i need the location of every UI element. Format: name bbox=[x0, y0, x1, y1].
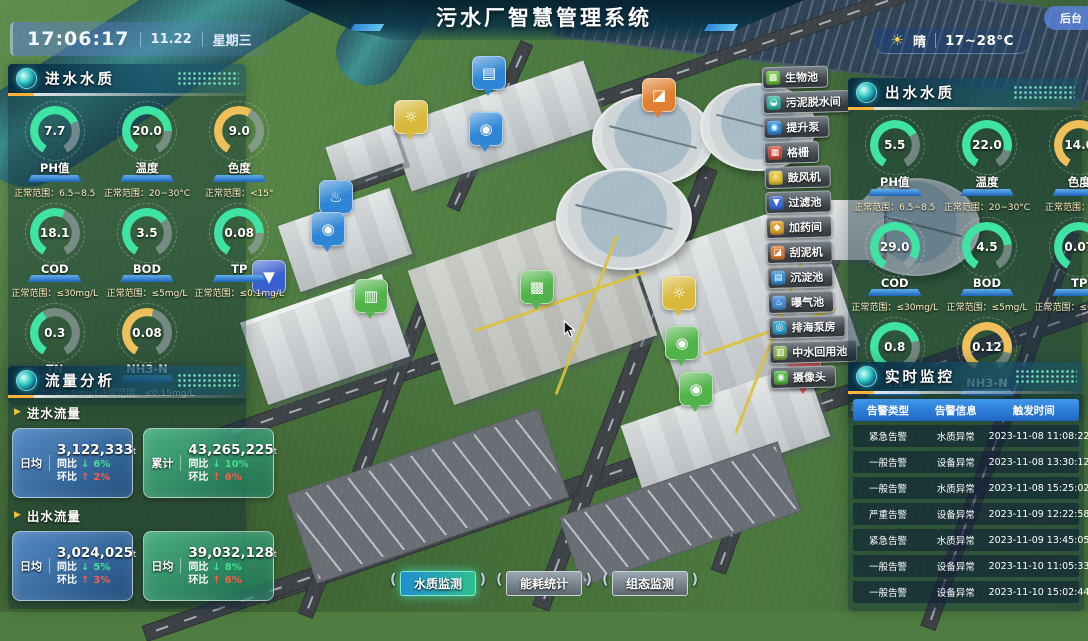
divider bbox=[140, 32, 141, 47]
marker-glyph: ☼ bbox=[394, 100, 428, 134]
clock-weekday: 星期三 bbox=[213, 30, 252, 49]
down-arrow-icon: ↓ bbox=[212, 561, 220, 574]
facility-label: 过滤池 bbox=[788, 194, 821, 211]
gauge-label: COD bbox=[41, 262, 69, 276]
gauge-label-pedestal bbox=[960, 289, 1014, 296]
temperature-range: 17~28°C bbox=[945, 33, 1014, 49]
flow-amount: 3,122,333 bbox=[57, 442, 133, 458]
gauge-label: 温度 bbox=[975, 174, 998, 190]
facility-label: 加药间 bbox=[789, 219, 822, 236]
normal-range: 正常范围：≤5mg/L bbox=[107, 286, 188, 299]
alarm-type: 一般告警 bbox=[853, 585, 923, 599]
gauge-label-pedestal bbox=[960, 189, 1014, 196]
flow-unit: t bbox=[133, 447, 136, 457]
alarm-type: 严重告警 bbox=[853, 507, 923, 521]
clock-date: 11.22 bbox=[151, 32, 192, 47]
gauge-value: 0.08 bbox=[214, 208, 264, 258]
flow-unit: t bbox=[274, 447, 277, 457]
facility-pill-dosing-room[interactable]: ◆ 加药间 bbox=[766, 215, 833, 239]
normal-range: 正常范围：≤5mg/L bbox=[947, 300, 1028, 313]
range-value: ≤5mg/L bbox=[992, 303, 1028, 313]
gauge-value: 29.0 bbox=[870, 222, 920, 272]
footer-tab[interactable]: 能耗统计 bbox=[506, 571, 582, 596]
mom-label: 环比 bbox=[188, 574, 208, 587]
range-value: ≤30mg/L bbox=[896, 303, 938, 313]
gauge-value: 20.0 bbox=[122, 106, 172, 156]
flow-value: 3,122,333t bbox=[57, 442, 125, 458]
range-value: ≤0.1mg/L bbox=[240, 289, 284, 299]
parking-lot bbox=[287, 409, 568, 582]
gauge-label-pedestal bbox=[28, 175, 82, 182]
marker-glyph: ☼ bbox=[662, 276, 696, 310]
section-orb-icon bbox=[16, 68, 37, 89]
facility-label: 中水回用池 bbox=[792, 343, 847, 360]
gauge-value: 9.0 bbox=[214, 106, 264, 156]
gauge-value: 22.0 bbox=[962, 120, 1012, 170]
range-prefix: 正常范围： bbox=[205, 189, 250, 199]
yoy-label: 同比 bbox=[57, 561, 77, 574]
gauge-value: 4.5 bbox=[962, 222, 1012, 272]
facility-glyph: ◪ bbox=[773, 248, 782, 258]
facility-icon: ▦ bbox=[768, 146, 782, 160]
facility-glyph: ◆ bbox=[773, 223, 780, 233]
facility-glyph: ▤ bbox=[774, 273, 783, 283]
gauge-ring: 29.0 bbox=[870, 222, 920, 272]
alarm-type: 紧急告警 bbox=[853, 429, 923, 443]
table-row[interactable]: 紧急告警 水质异常 2023-11-08 11:08:22 bbox=[853, 425, 1079, 447]
range-value: 6.5~8.5 bbox=[899, 203, 935, 213]
gauge-value: 7.7 bbox=[30, 106, 80, 156]
gauge-ring: 0.08 bbox=[122, 308, 172, 358]
flow-analysis-panel: 流量分析 ▶ 进水流量 日均 3,122,333t 同比↓6% 环比↑2% 累计… bbox=[8, 366, 246, 609]
flow-value: 43,265,225t bbox=[188, 442, 266, 458]
facility-pill-aeration[interactable]: ♨ 曝气池 bbox=[768, 290, 835, 314]
alarm-type: 一般告警 bbox=[853, 455, 923, 469]
section-orb-icon bbox=[16, 370, 37, 391]
panel-header: 流量分析 bbox=[8, 366, 246, 395]
gauge-label: PH值 bbox=[40, 160, 70, 176]
panel-header: 进水水质 bbox=[8, 64, 246, 93]
table-row[interactable]: 一般告警 设备异常 2023-11-10 11:05:33 bbox=[853, 555, 1079, 577]
normal-range: 正常范围：≤30mg/L bbox=[851, 300, 938, 313]
normal-range: 正常范围：20~30°C bbox=[104, 186, 190, 199]
gauge-ring: 4.5 bbox=[962, 222, 1012, 272]
mom-value: 6% bbox=[225, 574, 242, 587]
divider bbox=[202, 32, 203, 47]
normal-range: 正常范围：20~30°C bbox=[944, 200, 1030, 213]
dot-grid-decoration bbox=[1015, 369, 1077, 384]
gauge-label-pedestal bbox=[212, 175, 266, 182]
facility-icon: ◉ bbox=[767, 121, 781, 135]
mom-label: 环比 bbox=[188, 471, 208, 484]
flow-amount: 3,024,025 bbox=[57, 545, 133, 561]
map-marker-blower-icon[interactable]: ☼ bbox=[394, 100, 426, 132]
facility-pill-sludge-dewater[interactable]: ◒ 污泥脱水间 bbox=[762, 90, 851, 114]
subsection-title: 出水流量 bbox=[27, 506, 81, 525]
marker-glyph: ◉ bbox=[311, 212, 345, 246]
marker-symbol: ◪ bbox=[652, 86, 666, 104]
map-marker-biopool-icon[interactable]: ▩ bbox=[520, 270, 552, 302]
quality-gauge: 22.0 温度 正常范围：20~30°C bbox=[939, 120, 1034, 213]
marker-symbol: ☼ bbox=[404, 108, 417, 126]
weather-condition: 晴 bbox=[913, 31, 926, 50]
normal-range: 正常范围：≤0.1mg/L bbox=[1035, 300, 1088, 313]
quality-gauge: 3.5 BOD 正常范围：≤5mg/L bbox=[99, 208, 194, 299]
yoy-trend: 同比↓6% bbox=[57, 458, 125, 471]
gauge-value: 0.3 bbox=[30, 308, 80, 358]
yoy-trend: 同比↓5% bbox=[57, 561, 125, 574]
facility-glyph: ◎ bbox=[776, 323, 784, 333]
range-prefix: 正常范围： bbox=[851, 303, 896, 313]
yoy-value: 6% bbox=[93, 458, 110, 471]
facility-legend-stack: ▩ 生物池 ◒ 污泥脱水间 ◉ 提升泵 ▦ 格栅 ☼ 鼓风机 ▼ 过滤池 ◆ 加… bbox=[762, 65, 858, 389]
gauge-ring: 22.0 bbox=[962, 120, 1012, 170]
mom-trend: 环比↑6% bbox=[188, 574, 266, 587]
gauge-ring: 0.3 bbox=[30, 308, 80, 358]
quality-gauge: 20.0 温度 正常范围：20~30°C bbox=[99, 106, 194, 199]
column-header: 触发时间 bbox=[989, 403, 1079, 418]
section-orb-icon bbox=[856, 366, 877, 387]
range-value: ≤30mg/L bbox=[56, 289, 98, 299]
gauge-label-pedestal bbox=[1052, 189, 1088, 196]
alarm-info: 设备异常 bbox=[923, 585, 989, 599]
table-row[interactable]: 紧急告警 水质异常 2023-11-09 13:45:05 bbox=[853, 529, 1079, 551]
facility-icon: ◪ bbox=[770, 246, 784, 260]
alarm-info: 水质异常 bbox=[923, 481, 989, 495]
facility-label: 生物池 bbox=[785, 69, 818, 86]
facility-icon: ▥ bbox=[773, 346, 787, 360]
marker-glyph: ▥ bbox=[354, 279, 388, 313]
flow-card-body: 3,024,025t 同比↓5% 环比↑3% bbox=[57, 545, 125, 587]
range-value: <15° bbox=[250, 189, 274, 199]
mom-trend: 环比↑2% bbox=[57, 471, 125, 484]
panel-title: 进水水质 bbox=[45, 68, 115, 89]
pipe bbox=[474, 271, 645, 332]
facility-glyph: ◉ bbox=[777, 373, 785, 383]
facility-icon: ▩ bbox=[766, 71, 780, 85]
up-arrow-icon: ↑ bbox=[81, 471, 89, 484]
parking-lot bbox=[560, 443, 801, 586]
marker-symbol: ▩ bbox=[530, 278, 544, 296]
range-prefix: 正常范围： bbox=[107, 289, 152, 299]
facility-label: 摄像头 bbox=[793, 369, 826, 386]
facility-glyph: ◒ bbox=[770, 98, 778, 108]
gauge-ring: 3.5 bbox=[122, 208, 172, 258]
facility-pill-sedimentation[interactable]: ▤ 沉淀池 bbox=[767, 265, 834, 289]
alarm-time: 2023-11-09 12:22:58 bbox=[989, 509, 1079, 520]
yoy-trend: 同比↓10% bbox=[188, 458, 266, 471]
map-marker-camera-2-icon[interactable]: ◉ bbox=[679, 372, 711, 404]
gauge-ring: 0.07 bbox=[1054, 222, 1088, 272]
marker-symbol: ◉ bbox=[321, 220, 334, 238]
quality-gauge: 0.07 TP 正常范围：≤0.1mg/L bbox=[1035, 222, 1088, 313]
gauge-value: 5.5 bbox=[870, 120, 920, 170]
yoy-label: 同比 bbox=[188, 458, 208, 471]
triangle-bullet-icon: ▶ bbox=[14, 511, 21, 520]
up-arrow-icon: ↑ bbox=[212, 574, 220, 587]
range-prefix: 正常范围： bbox=[1045, 203, 1088, 213]
facility-pill-camera[interactable]: ◉ 摄像头 bbox=[770, 365, 837, 389]
range-value: 6.5~8.5 bbox=[59, 189, 95, 199]
road bbox=[299, 276, 441, 617]
map-marker-lift-pump-icon[interactable]: ◉ bbox=[469, 112, 501, 144]
alarm-time: 2023-11-09 13:45:05 bbox=[989, 535, 1079, 546]
gauge-label-pedestal bbox=[212, 275, 266, 282]
flow-unit: t bbox=[274, 550, 277, 560]
facility-pill-sea-pump-house[interactable]: ◎ 排海泵房 bbox=[768, 315, 846, 339]
normal-range: 正常范围：≤0.1mg/L bbox=[195, 286, 284, 299]
panel-title: 流量分析 bbox=[45, 370, 115, 391]
gauge-value: 0.08 bbox=[122, 308, 172, 358]
table-row[interactable]: 严重告警 设备异常 2023-11-09 12:22:58 bbox=[853, 503, 1079, 525]
flow-value: 3,024,025t bbox=[57, 545, 125, 561]
gauge-ring: 14.0 bbox=[1054, 120, 1088, 170]
quality-gauge: 7.7 PH值 正常范围：6.5~8.5 bbox=[10, 106, 99, 199]
up-arrow-icon: ↑ bbox=[212, 471, 220, 484]
normal-range: 正常范围：6.5~8.5 bbox=[854, 200, 935, 213]
facility-icon: ▼ bbox=[769, 196, 783, 210]
facility-pill-reuse-pool[interactable]: ▥ 中水回用池 bbox=[769, 340, 858, 364]
marker-glyph: ♨ bbox=[319, 180, 353, 214]
facility-pill-lift-pump[interactable]: ◉ 提升泵 bbox=[763, 115, 830, 139]
facility-pill-grille[interactable]: ▦ 格栅 bbox=[764, 141, 820, 164]
map-marker-sedimentation-icon[interactable]: ▤ bbox=[472, 56, 504, 88]
gauge-grid: 7.7 PH值 正常范围：6.5~8.5 20.0 温度 正常范围：20~30°… bbox=[8, 93, 246, 405]
flow-card-tag: 日均 bbox=[20, 558, 50, 574]
quality-gauge: 9.0 色度 正常范围：<15° bbox=[195, 106, 284, 199]
footer-tab-label: 水质监测 bbox=[414, 577, 462, 591]
yoy-trend: 同比↓8% bbox=[188, 561, 266, 574]
gauge-label-pedestal bbox=[28, 275, 82, 282]
marker-glyph: ▤ bbox=[472, 56, 506, 90]
quality-gauge: 14.0 色度 正常范围：<15° bbox=[1035, 120, 1088, 213]
yoy-value: 10% bbox=[225, 458, 249, 471]
range-value: 20~30°C bbox=[989, 203, 1030, 213]
flow-value: 39,032,128t bbox=[188, 545, 266, 561]
mom-trend: 环比↑6% bbox=[188, 471, 266, 484]
alarm-time: 2023-11-08 13:30:12 bbox=[989, 457, 1079, 468]
column-header: 告警类型 bbox=[853, 403, 923, 418]
facility-glyph: ▦ bbox=[771, 148, 780, 158]
marker-glyph: ◪ bbox=[642, 78, 676, 112]
flow-card: 日均 3,122,333t 同比↓6% 环比↑2% bbox=[12, 428, 133, 498]
inlet-flow-subheader: ▶ 进水流量 bbox=[8, 395, 246, 428]
flow-card-tag: 累计 bbox=[151, 455, 181, 471]
map-marker-pump-icon[interactable]: ◉ bbox=[311, 212, 343, 244]
marker-symbol: ▥ bbox=[364, 287, 378, 305]
gauge-value: 18.1 bbox=[30, 208, 80, 258]
yoy-label: 同比 bbox=[57, 458, 77, 471]
quality-gauge: 5.5 PH值 正常范围：6.5~8.5 bbox=[850, 120, 939, 213]
inlet-flow-cards: 日均 3,122,333t 同比↓6% 环比↑2% 累计 43,265,225t… bbox=[8, 428, 246, 498]
facility-glyph: ♨ bbox=[775, 298, 783, 308]
gauge-label: BOD bbox=[133, 262, 161, 276]
quality-gauge: 29.0 COD 正常范围：≤30mg/L bbox=[850, 222, 939, 313]
facility-pill-biopool[interactable]: ▩ 生物池 bbox=[762, 65, 829, 89]
table-row[interactable]: 一般告警 水质异常 2023-11-08 15:25:02 bbox=[853, 477, 1079, 499]
clarifier-tank bbox=[556, 168, 692, 270]
facility-pill-blower[interactable]: ☼ 鼓风机 bbox=[764, 165, 831, 189]
quality-gauge: 18.1 COD 正常范围：≤30mg/L bbox=[10, 208, 99, 299]
gauge-label: 温度 bbox=[135, 160, 158, 176]
gauge-ring: 9.0 bbox=[214, 106, 264, 156]
range-prefix: 正常范围： bbox=[14, 189, 59, 199]
mom-label: 环比 bbox=[57, 574, 77, 587]
facility-label: 排海泵房 bbox=[791, 318, 835, 335]
flow-unit: t bbox=[133, 550, 136, 560]
down-arrow-icon: ↓ bbox=[212, 458, 220, 471]
alarm-time: 2023-11-10 15:02:44 bbox=[989, 587, 1079, 598]
facility-glyph: ▩ bbox=[769, 73, 778, 83]
building bbox=[325, 125, 404, 186]
facility-glyph: ▥ bbox=[776, 348, 785, 358]
down-arrow-icon: ↓ bbox=[81, 458, 89, 471]
yoy-value: 8% bbox=[225, 561, 242, 574]
outlet-flow-subheader: ▶ 出水流量 bbox=[8, 498, 246, 531]
gauge-ring: 7.7 bbox=[30, 106, 80, 156]
flow-card-body: 3,122,333t 同比↓6% 环比↑2% bbox=[57, 442, 125, 484]
footer-tab[interactable]: 组态监测 bbox=[612, 571, 688, 596]
range-prefix: 正常范围： bbox=[944, 203, 989, 213]
page-title: 污水厂智慧管理系统 bbox=[284, 0, 804, 37]
map-marker-blower-2-icon[interactable]: ☼ bbox=[662, 276, 694, 308]
map-marker-reuse-pool-icon[interactable]: ▥ bbox=[354, 279, 386, 311]
dot-grid-decoration bbox=[177, 71, 239, 86]
facility-label: 曝气池 bbox=[791, 294, 824, 311]
panel-header: 出水水质 bbox=[848, 78, 1082, 107]
up-arrow-icon: ↑ bbox=[81, 574, 89, 587]
gauge-value: 14.0 bbox=[1054, 120, 1088, 170]
gauge-label: 色度 bbox=[228, 160, 251, 176]
facility-pill-mud-scraper[interactable]: ◪ 刮泥机 bbox=[766, 240, 833, 264]
flow-card-body: 43,265,225t 同比↓10% 环比↑6% bbox=[188, 442, 266, 484]
mom-value: 3% bbox=[93, 574, 110, 587]
alarm-type: 一般告警 bbox=[853, 559, 923, 573]
range-prefix: 正常范围： bbox=[854, 203, 899, 213]
marker-glyph: ▩ bbox=[520, 270, 554, 304]
range-prefix: 正常范围： bbox=[947, 303, 992, 313]
facility-icon: ◎ bbox=[772, 321, 786, 335]
footer-tab-label: 组态监测 bbox=[626, 577, 674, 591]
map-marker-aeration-icon[interactable]: ♨ bbox=[319, 180, 351, 212]
mom-value: 2% bbox=[93, 471, 110, 484]
gauge-value: 3.5 bbox=[122, 208, 172, 258]
gauge-ring: 0.08 bbox=[214, 208, 264, 258]
gauge-ring: 5.5 bbox=[870, 120, 920, 170]
alarm-table-header: 告警类型 告警信息 触发时间 bbox=[853, 399, 1079, 421]
gauge-label: BOD bbox=[973, 276, 1001, 290]
alarm-info: 设备异常 bbox=[923, 455, 989, 469]
facility-label: 刮泥机 bbox=[789, 244, 822, 261]
gauge-label: TP bbox=[231, 262, 247, 276]
gauge-label: PH值 bbox=[880, 174, 910, 190]
table-row[interactable]: 一般告警 设备异常 2023-11-10 15:02:44 bbox=[853, 581, 1079, 603]
facility-icon: ♨ bbox=[772, 296, 786, 310]
facility-pill-filter-pool[interactable]: ▼ 过滤池 bbox=[765, 190, 832, 214]
footer-tab[interactable]: 水质监测 bbox=[400, 571, 476, 596]
gauge-label: 色度 bbox=[1068, 174, 1088, 190]
flow-amount: 39,032,128 bbox=[188, 545, 273, 561]
alarm-time: 2023-11-08 11:08:22 bbox=[989, 431, 1079, 442]
mom-label: 环比 bbox=[57, 471, 77, 484]
alarm-info: 设备异常 bbox=[923, 559, 989, 573]
gauge-value: 0.07 bbox=[1054, 222, 1088, 272]
section-orb-icon bbox=[856, 82, 877, 103]
normal-range: 正常范围：<15° bbox=[1045, 200, 1088, 213]
pipe bbox=[555, 235, 619, 395]
down-arrow-icon: ↓ bbox=[81, 561, 89, 574]
alarm-time: 2023-11-10 11:05:33 bbox=[989, 561, 1079, 572]
alarm-type: 紧急告警 bbox=[853, 533, 923, 547]
mom-value: 6% bbox=[225, 471, 242, 484]
alarm-table: 告警类型 告警信息 触发时间 紧急告警 水质异常 2023-11-08 11:0… bbox=[848, 391, 1084, 605]
gauge-label-pedestal bbox=[120, 175, 174, 182]
flow-card: 累计 43,265,225t 同比↓10% 环比↑6% bbox=[143, 428, 274, 498]
alarm-info: 水质异常 bbox=[923, 429, 989, 443]
map-marker-camera-icon[interactable]: ◉ bbox=[665, 326, 697, 358]
gauge-ring: 20.0 bbox=[122, 106, 172, 156]
outlet-flow-cards: 日均 3,024,025t 同比↓5% 环比↑3% 日均 39,032,128t… bbox=[8, 531, 246, 601]
marker-symbol: ▤ bbox=[482, 64, 496, 82]
gauge-ring: 18.1 bbox=[30, 208, 80, 258]
alarm-info: 设备异常 bbox=[923, 507, 989, 521]
facility-glyph: ◉ bbox=[770, 123, 778, 133]
flow-card-tag: 日均 bbox=[20, 455, 50, 471]
marker-glyph: ◉ bbox=[665, 326, 699, 360]
realtime-monitor-panel: 实时监控 告警类型 告警信息 触发时间 紧急告警 水质异常 2023-11-08… bbox=[848, 362, 1084, 611]
map-marker-mud-scraper-icon[interactable]: ◪ bbox=[642, 78, 674, 110]
triangle-bullet-icon: ▶ bbox=[14, 408, 21, 417]
facility-glyph: ▼ bbox=[773, 198, 780, 208]
panel-header: 实时监控 bbox=[848, 362, 1084, 391]
marker-symbol: ◉ bbox=[689, 380, 702, 398]
quality-gauge: 0.08 TP 正常范围：≤0.1mg/L bbox=[195, 208, 284, 299]
range-prefix: 正常范围： bbox=[195, 289, 240, 299]
footer-tab-bar: 水质监测 能耗统计 组态监测 bbox=[400, 571, 688, 596]
marker-symbol: ☼ bbox=[672, 284, 685, 302]
range-value: 20~30°C bbox=[149, 189, 190, 199]
range-value: ≤5mg/L bbox=[152, 289, 188, 299]
gauge-label-pedestal bbox=[868, 189, 922, 196]
flow-card-body: 39,032,128t 同比↓8% 环比↑6% bbox=[188, 545, 266, 587]
facility-glyph: ☼ bbox=[772, 173, 780, 183]
alarm-info: 水质异常 bbox=[923, 533, 989, 547]
panel-title: 出水水质 bbox=[885, 82, 955, 103]
facility-label: 格栅 bbox=[787, 144, 809, 161]
normal-range: 正常范围：6.5~8.5 bbox=[14, 186, 95, 199]
subsection-title: 进水流量 bbox=[27, 403, 81, 422]
marker-symbol: ◉ bbox=[479, 120, 492, 138]
range-prefix: 正常范围： bbox=[1035, 303, 1080, 313]
clock-time: 17:06:17 bbox=[27, 28, 130, 50]
facility-label: 沉淀池 bbox=[790, 269, 823, 286]
gauge-label: TP bbox=[1071, 276, 1087, 290]
table-row[interactable]: 一般告警 设备异常 2023-11-08 13:30:12 bbox=[853, 451, 1079, 473]
marker-glyph: ◉ bbox=[469, 112, 503, 146]
facility-label: 污泥脱水间 bbox=[786, 93, 841, 110]
backend-button[interactable]: 后台 bbox=[1044, 6, 1088, 30]
facility-icon: ◒ bbox=[767, 96, 781, 110]
flow-card: 日均 39,032,128t 同比↓8% 环比↑6% bbox=[143, 531, 274, 601]
alarm-table-body: 紧急告警 水质异常 2023-11-08 11:08:22 一般告警 设备异常 … bbox=[853, 425, 1079, 603]
gauge-label: COD bbox=[881, 276, 909, 290]
sun-icon: ☀ bbox=[890, 33, 903, 48]
dot-grid-decoration bbox=[177, 373, 239, 388]
marker-symbol: ◉ bbox=[675, 334, 688, 352]
inlet-quality-panel: 进水水质 7.7 PH值 正常范围：6.5~8.5 20.0 温度 正常范围：2… bbox=[8, 64, 246, 405]
alarm-time: 2023-11-08 15:25:02 bbox=[989, 483, 1079, 494]
normal-range: 正常范围：≤30mg/L bbox=[11, 286, 98, 299]
